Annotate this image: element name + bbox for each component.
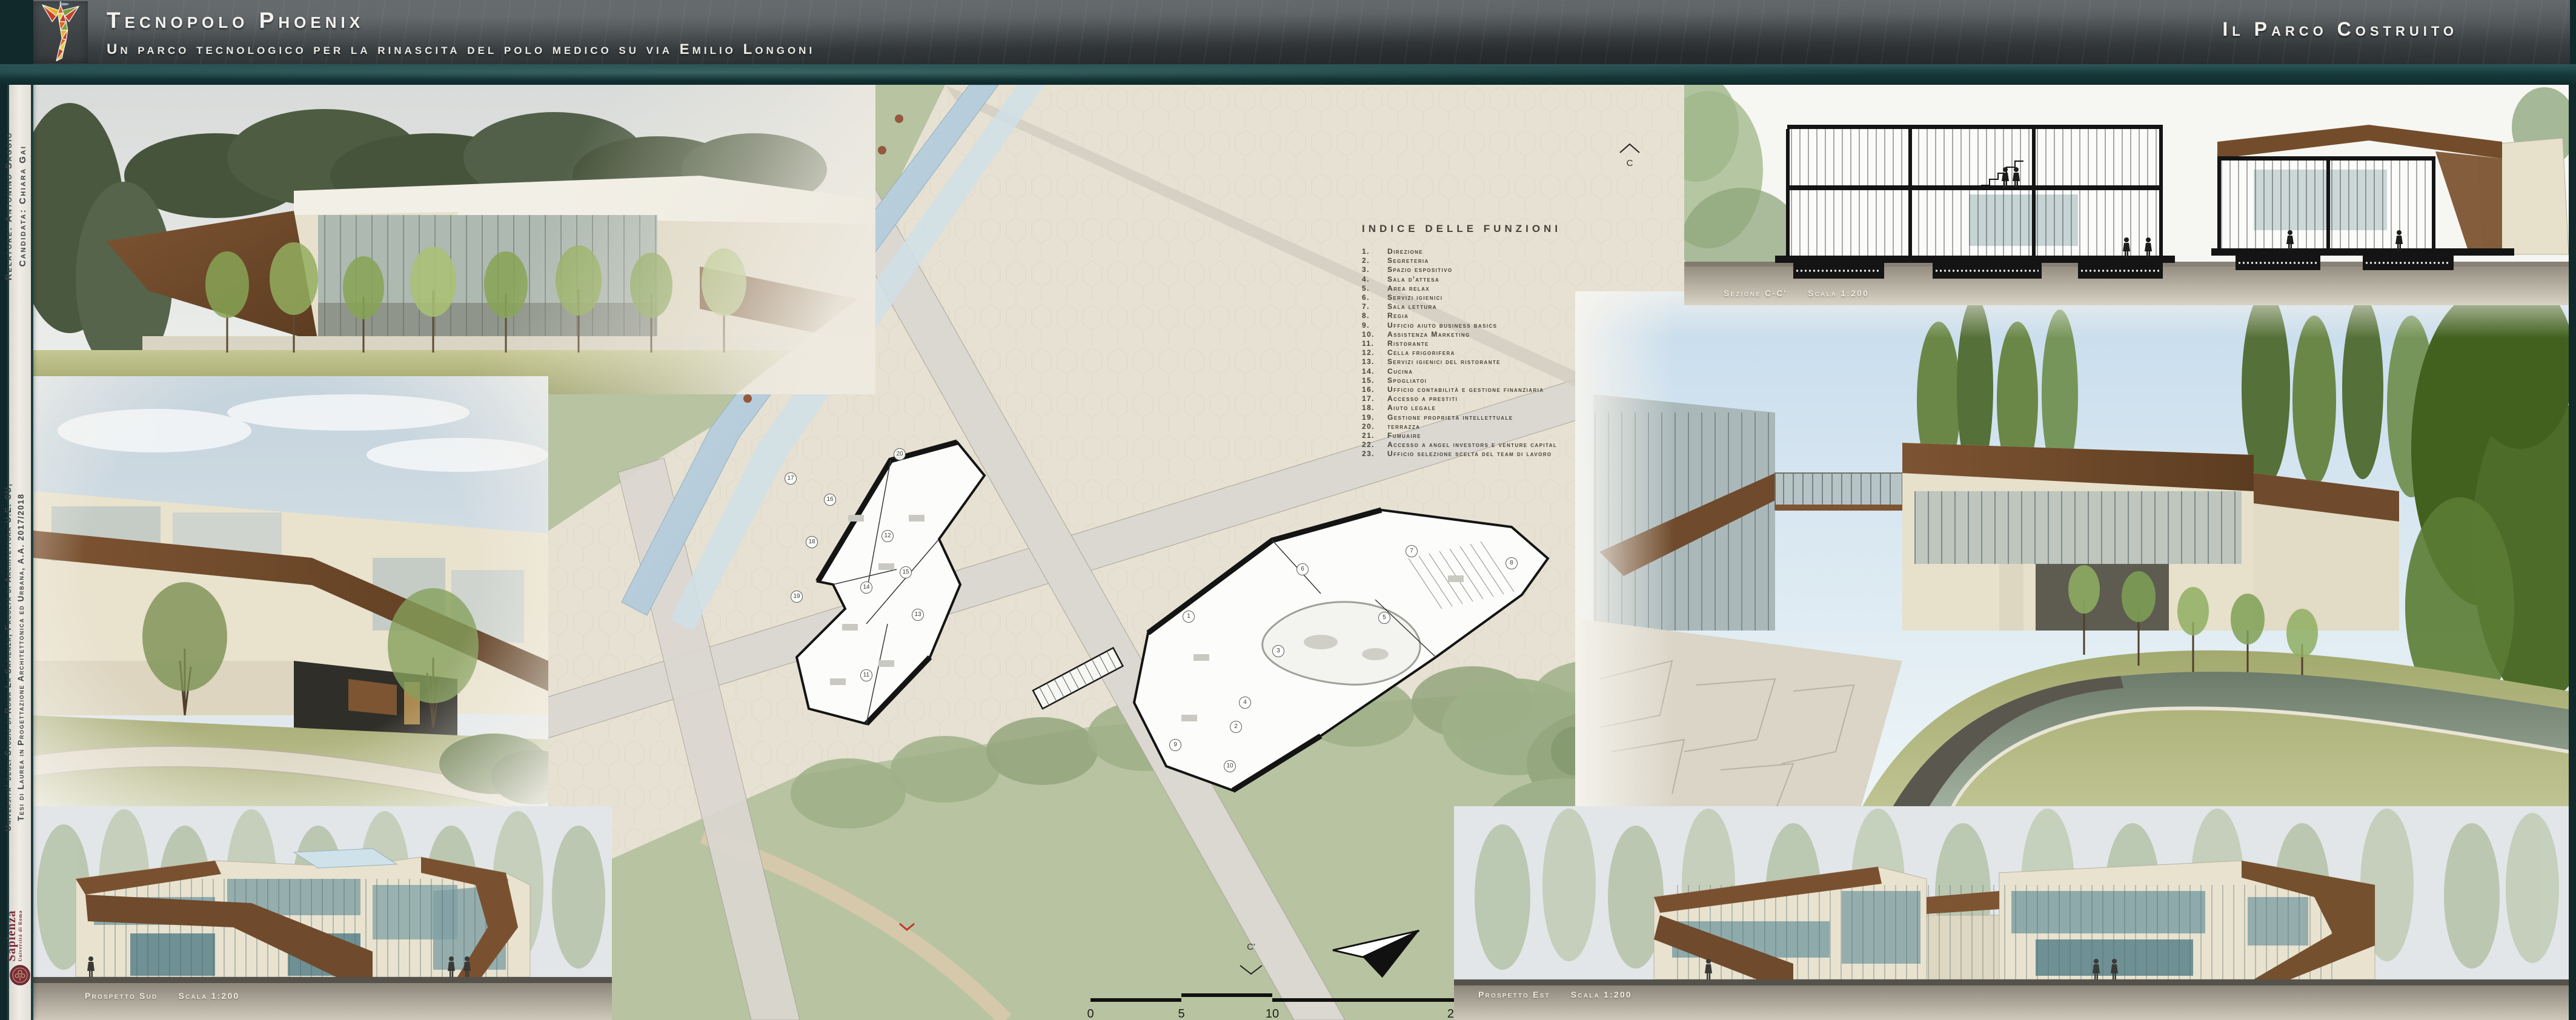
section-scale: Scala 1:200: [1808, 288, 1869, 298]
plan-room-number: 15: [900, 566, 912, 578]
section-b: [2211, 87, 2569, 270]
section-a: [1775, 125, 2175, 279]
function-index-item: 16.Ufficio contabilità e gestione finanz…: [1362, 385, 1762, 394]
elevation-east-panel: [1454, 806, 2569, 1020]
function-index-item: 9.Ufficio aiuto business basics: [1362, 321, 1762, 330]
function-index-item: 21.Fumuaire: [1362, 431, 1762, 440]
poster-subtitle: Un parco tecnologico per la rinascita de…: [107, 41, 815, 58]
sidebar-university: Università' degli Studio di Roma La Sapi…: [2, 391, 38, 924]
function-index-item: 6.Servizi igienici: [1362, 293, 1762, 302]
plan-room-number: 18: [806, 536, 818, 548]
plan-room-number: 12: [881, 530, 894, 542]
south-elevation-label-row: Prospetto Sud Scala 1:200: [85, 991, 239, 1001]
phoenix-logo: [33, 1, 88, 63]
render-left-middle: [33, 376, 548, 811]
plan-room-number: 7: [1406, 545, 1418, 557]
board-section-title: Il Parco Costruito: [2222, 18, 2458, 41]
function-index-item: 10.Assistenza Marketing: [1362, 330, 1762, 339]
function-index-item: 23.Ufficio selezione scelta del team di …: [1362, 449, 1762, 459]
section-drawings: [1684, 85, 2569, 305]
collage-board: C C' 0 5 10: [33, 85, 2569, 1020]
university-line1: Università' degli Studio di Roma La Sapi…: [2, 391, 15, 924]
credits-relatore: Relatore: Antonino Saggio: [2, 67, 16, 345]
ground-band: [33, 983, 612, 1020]
function-index-item: 11.Ristorante: [1362, 339, 1762, 348]
svg-text:0: 0: [1087, 1007, 1094, 1020]
header-bar: Tecnopolo Phoenix Un parco tecnologico p…: [0, 0, 2576, 64]
frame-teal-band: [0, 64, 2576, 85]
ground-line: [1454, 979, 2569, 985]
east-elevation-label-row: Prospetto Est Scala 1:200: [1478, 990, 1632, 999]
south-elevation-label: Prospetto Sud: [85, 991, 158, 1001]
render-top-left: [33, 85, 875, 394]
function-index-item: 20.terrazza: [1362, 422, 1762, 431]
elevation-south-panel: [33, 806, 612, 1020]
render-left-middle-image: [33, 376, 548, 811]
sections-panel: [1684, 85, 2569, 305]
plan-room-number: 14: [860, 581, 872, 594]
function-index-item: 7.Sala lettura: [1362, 302, 1762, 311]
section-label-row: Sezione C-C' Scala 1:200: [1724, 288, 1869, 298]
function-index-item: 17.Accesso a prestiti: [1362, 394, 1762, 403]
function-index-item: 18.Aiuto legale: [1362, 403, 1762, 412]
function-index-item: 13.Servizi igienici del ristorante: [1362, 357, 1762, 366]
plan-room-number: 20: [894, 448, 906, 460]
sidebar-credits: Relatore: Antonino Saggio Candidata: Chi…: [2, 67, 38, 345]
function-index-item: 19.Gestione proprietà intellettuale: [1362, 413, 1762, 422]
sapienza-emblem-icon: [9, 964, 31, 986]
function-index-item: 8.Regia: [1362, 311, 1762, 320]
plan-room-number: 9: [1169, 739, 1181, 751]
presentation-board: Tecnopolo Phoenix Un parco tecnologico p…: [0, 0, 2576, 1020]
render-top-left-image: [33, 85, 875, 394]
plan-room-number: 3: [1272, 645, 1284, 657]
section-label: Sezione C-C': [1724, 288, 1787, 298]
poster-title: Tecnopolo Phoenix: [107, 8, 815, 33]
plan-room-number: 19: [791, 591, 803, 603]
svg-text:C: C: [1627, 158, 1633, 168]
plan-room-number: 11: [860, 669, 872, 681]
ground-line: [33, 977, 612, 983]
function-index-item: 12.Cella frigorifera: [1362, 348, 1762, 357]
plan-room-number: 13: [912, 609, 924, 621]
svg-text:C': C': [1247, 942, 1255, 952]
function-index-item: 5.Area relax: [1362, 284, 1762, 293]
svg-text:5: 5: [1178, 1007, 1184, 1020]
plan-room-number: 2: [1230, 721, 1242, 733]
function-index-item: 14.Cucina: [1362, 367, 1762, 376]
plan-room-number: 6: [1296, 563, 1309, 575]
university-line2: Tesi di Laurea in Progettazione Architet…: [15, 391, 27, 924]
east-elevation-label: Prospetto Est: [1478, 990, 1550, 999]
plan-room-number: 10: [1224, 760, 1236, 772]
plan-room-number: 8: [1505, 557, 1518, 569]
cypress-mass: [2405, 291, 2569, 715]
plan-room-number: 16: [824, 494, 836, 506]
credits-candidata: Candidata: Chiara Gai: [16, 67, 30, 345]
function-index-item: 4.Sala d'attesa: [1362, 275, 1762, 284]
svg-text:10: 10: [1266, 1007, 1279, 1020]
plan-room-number: 17: [785, 472, 797, 485]
function-index-item: 3.Spazio espositivo: [1362, 265, 1762, 274]
function-index-title: Indice delle funzioni: [1362, 223, 1762, 235]
east-elevation-scale: Scala 1:200: [1571, 990, 1632, 999]
elevation-south-drawing: [33, 806, 612, 1020]
function-index-item: 2.Segreteria: [1362, 256, 1762, 265]
function-index-item: 22.Accesso a angel investors e venture c…: [1362, 440, 1762, 449]
function-index-list: 1.Direzione2.Segreteria3.Spazio espositi…: [1362, 247, 1762, 459]
plan-room-number: 1: [1183, 611, 1195, 623]
elevation-east-drawing: [1454, 806, 2569, 1020]
function-index-item: 15.Spogliatoi: [1362, 376, 1762, 385]
plan-room-number: 5: [1378, 612, 1390, 624]
function-index: Indice delle funzioni 1.Direzione2.Segre…: [1362, 223, 1762, 459]
south-elevation-scale: Scala 1:200: [178, 991, 239, 1001]
function-index-item: 1.Direzione: [1362, 247, 1762, 256]
phoenix-icon: [38, 0, 83, 63]
plan-room-number: 4: [1239, 697, 1251, 709]
